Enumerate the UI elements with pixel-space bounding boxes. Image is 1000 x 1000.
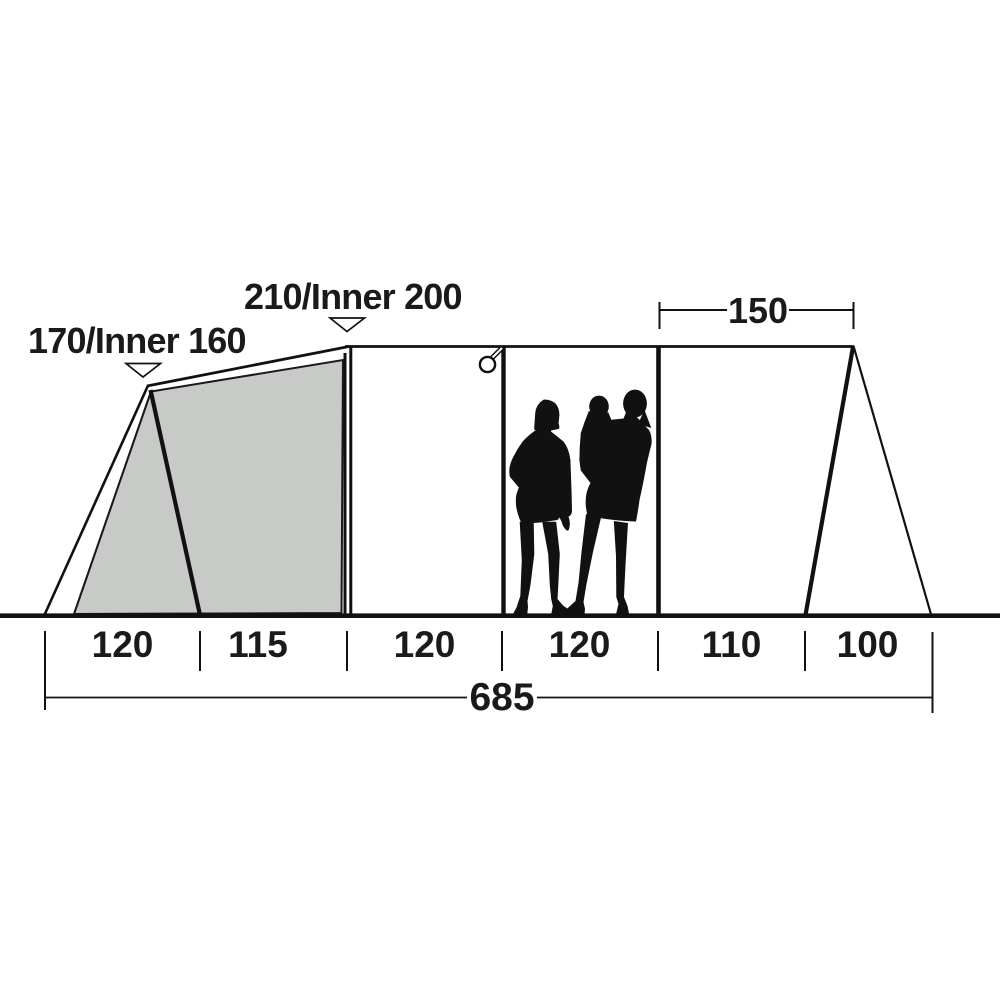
svg-text:210/Inner 200: 210/Inner 200 — [244, 276, 462, 317]
svg-text:120: 120 — [549, 624, 611, 665]
svg-text:150: 150 — [728, 290, 788, 331]
svg-text:120: 120 — [92, 624, 154, 665]
svg-text:170/Inner 160: 170/Inner 160 — [28, 320, 246, 361]
svg-text:685: 685 — [469, 676, 534, 719]
svg-text:120: 120 — [394, 624, 456, 665]
svg-text:100: 100 — [837, 624, 899, 665]
svg-text:110: 110 — [702, 624, 762, 665]
svg-text:115: 115 — [228, 624, 288, 665]
